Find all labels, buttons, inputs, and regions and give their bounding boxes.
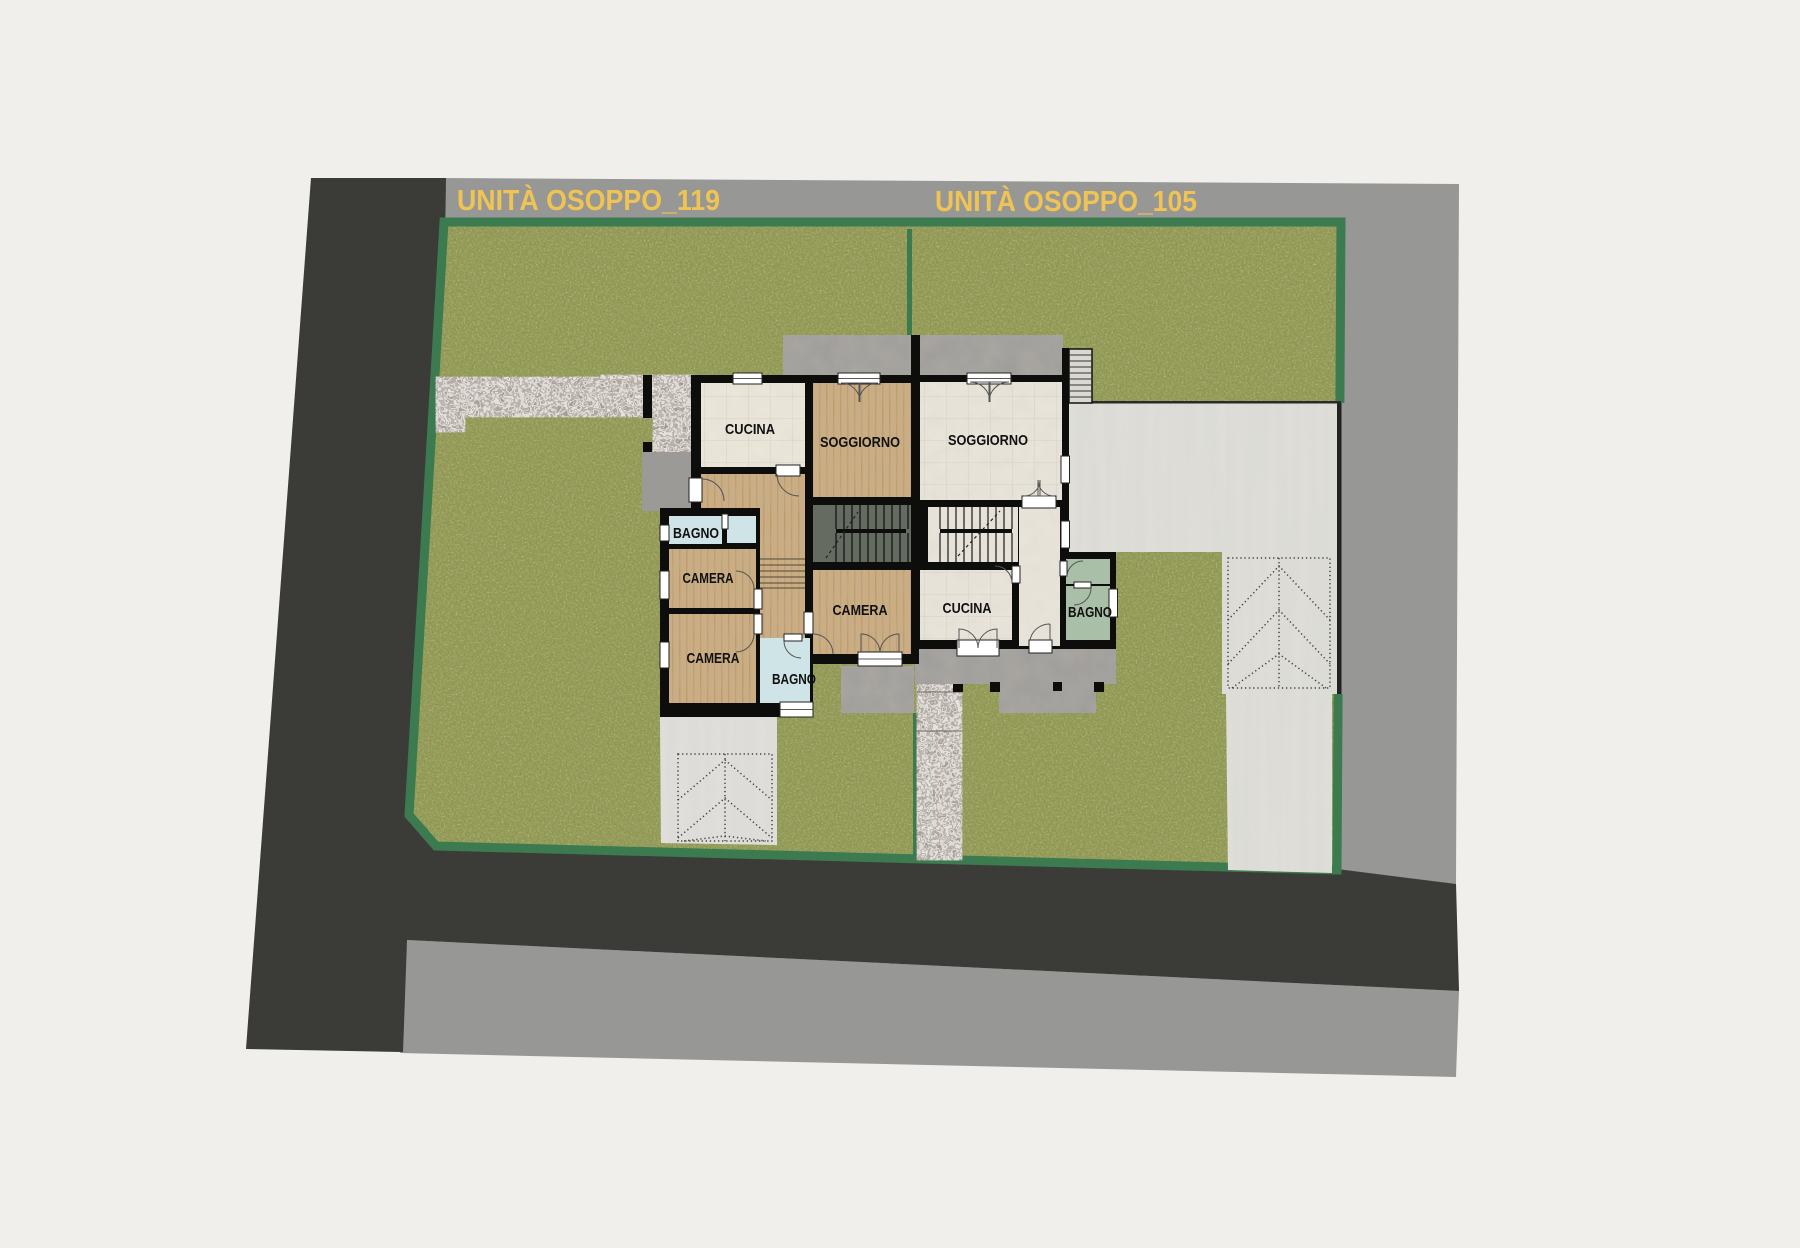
svg-text:SOGGIORNO: SOGGIORNO [948,432,1028,449]
svg-text:BAGNO: BAGNO [673,525,719,542]
svg-text:CAMERA: CAMERA [683,570,734,587]
svg-text:UNITÀ OSOPPO_119: UNITÀ OSOPPO_119 [457,183,720,217]
svg-text:CAMERA: CAMERA [833,602,888,619]
svg-text:CUCINA: CUCINA [943,600,992,617]
svg-text:BAGNO: BAGNO [772,671,816,688]
svg-text:CAMERA: CAMERA [687,650,740,667]
svg-text:SOGGIORNO: SOGGIORNO [820,434,900,451]
svg-text:BAGNO: BAGNO [1068,604,1112,621]
svg-text:UNITÀ OSOPPO_105: UNITÀ OSOPPO_105 [935,184,1197,218]
svg-text:CUCINA: CUCINA [725,421,775,438]
